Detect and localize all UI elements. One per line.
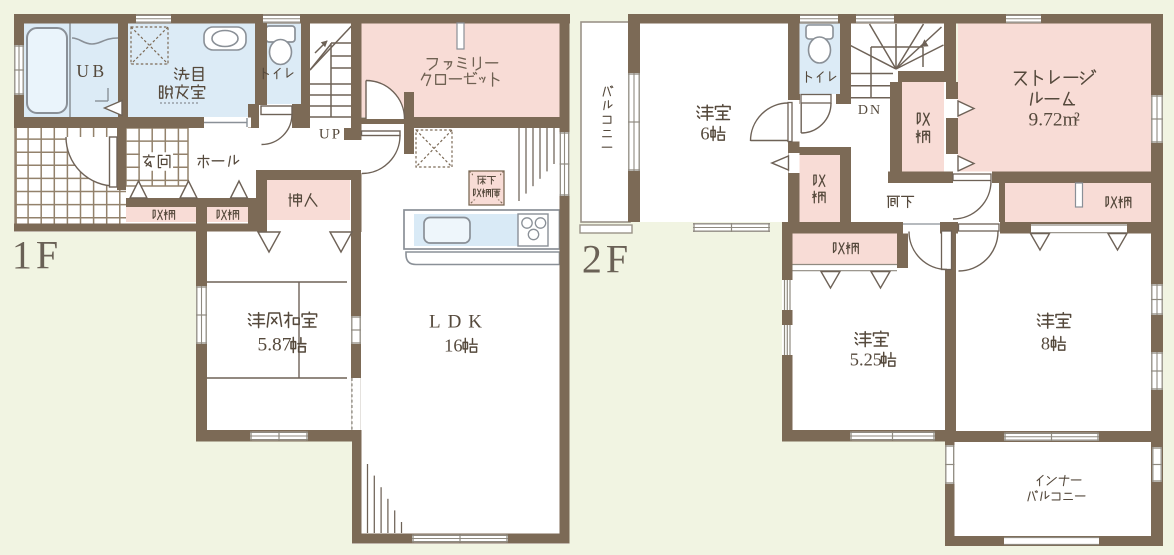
svg-text:16: 16 (444, 336, 462, 356)
svg-text:²: ² (1074, 110, 1080, 131)
svg-text:5.25: 5.25 (850, 350, 882, 370)
svg-text:5.87: 5.87 (257, 335, 291, 356)
svg-text:8: 8 (1041, 334, 1050, 354)
svg-text:UB: UB (76, 61, 107, 81)
svg-text:DN: DN (858, 103, 882, 118)
svg-text:1F: 1F (12, 233, 62, 278)
svg-text:6: 6 (700, 124, 709, 144)
svg-text:UP: UP (319, 127, 342, 143)
svg-text:9.72m: 9.72m (1029, 110, 1078, 131)
svg-text:2F: 2F (582, 237, 632, 282)
svg-text:LDK: LDK (429, 312, 489, 333)
